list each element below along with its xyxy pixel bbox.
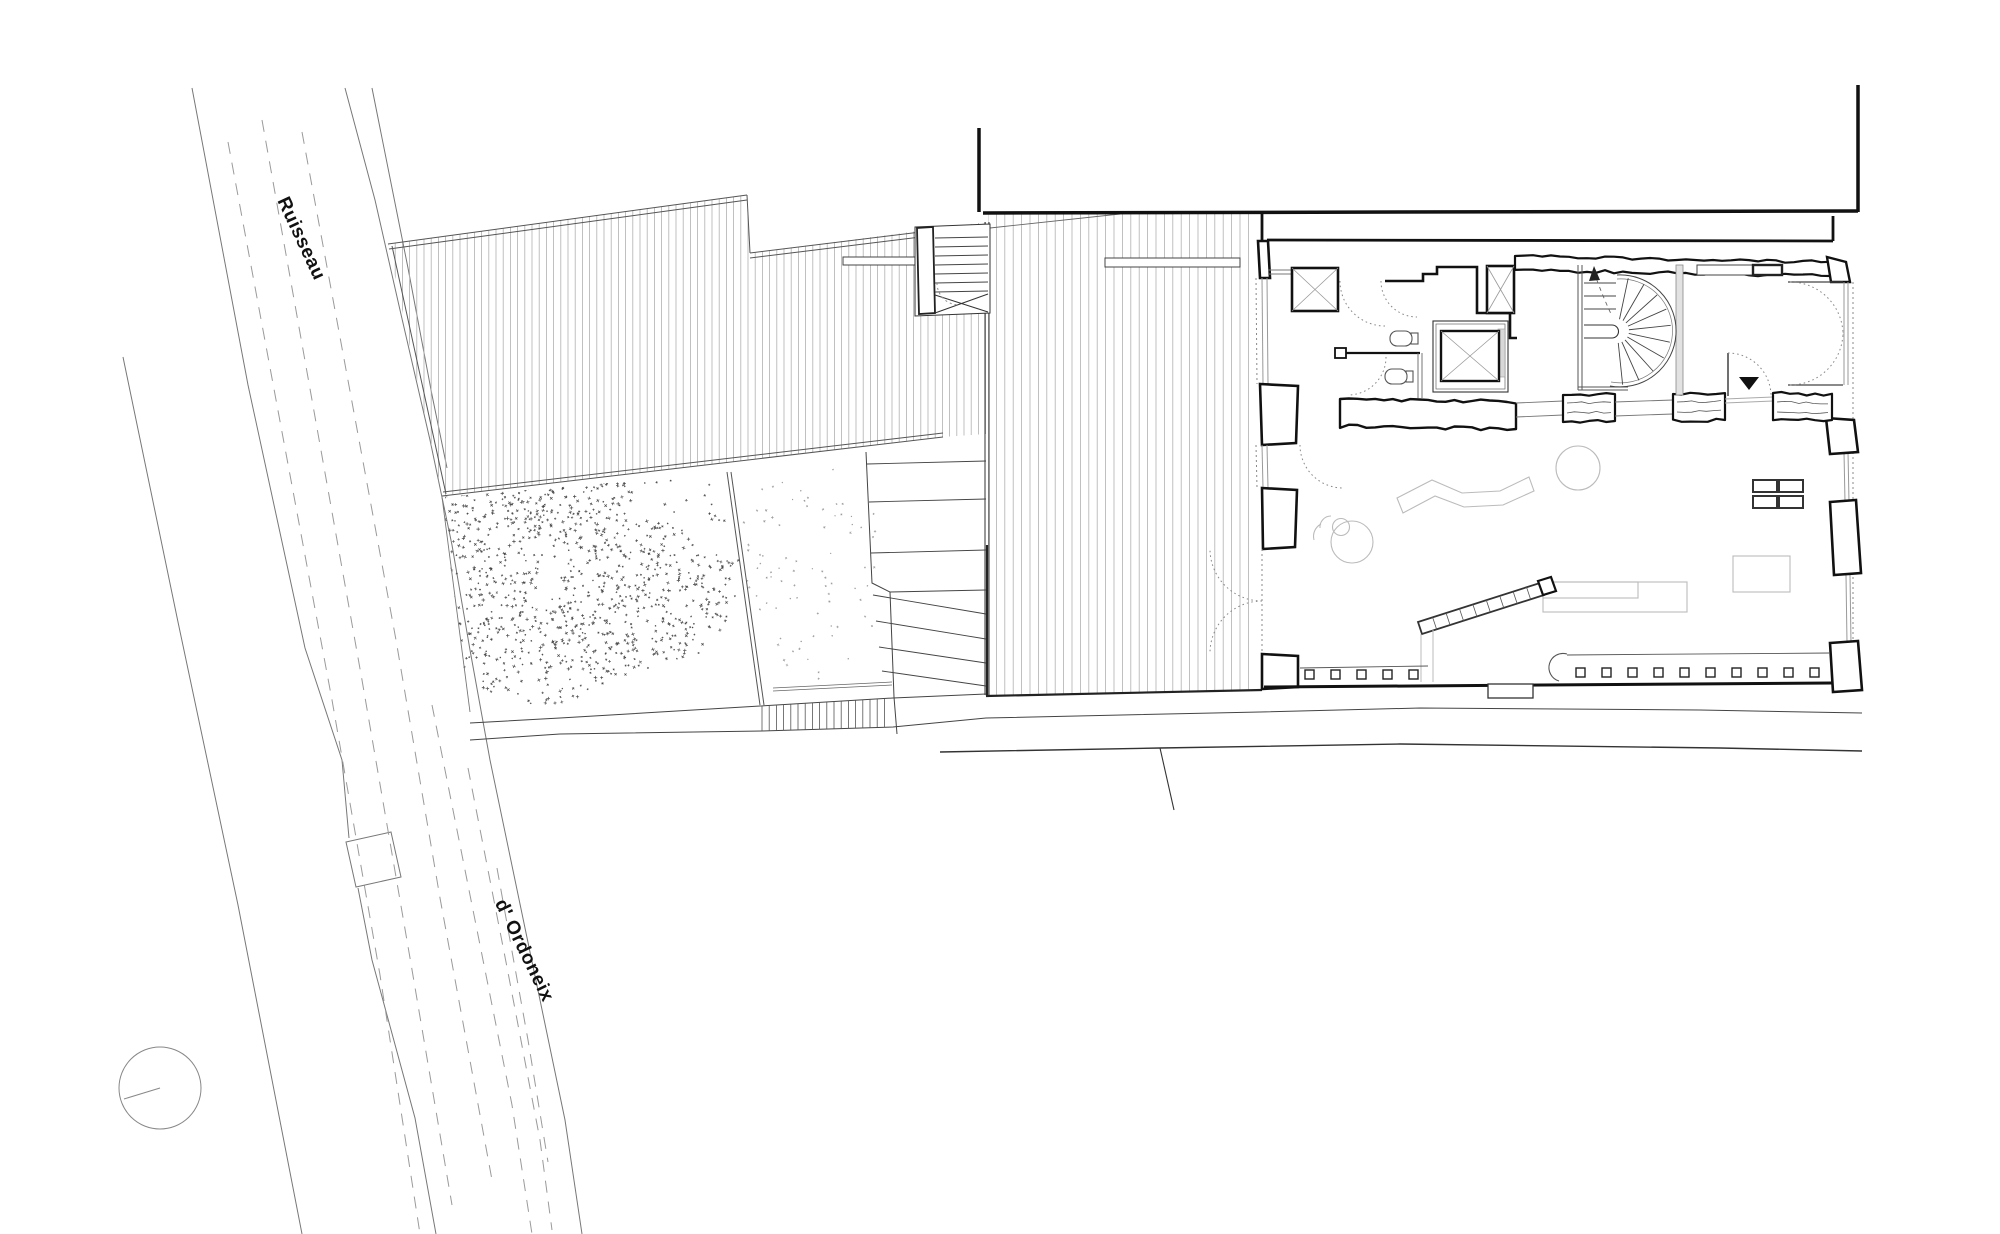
door-swing <box>1728 353 1771 396</box>
entry-door-swing <box>1790 332 1843 385</box>
rug <box>1733 556 1790 592</box>
window-bench <box>1300 653 1830 681</box>
radiator <box>1697 265 1753 275</box>
table-module <box>1779 496 1803 508</box>
table-module <box>1753 480 1777 492</box>
hall-north-wall <box>1340 353 1832 430</box>
roof-ridge-bar <box>843 257 917 265</box>
entry-door-swing <box>1790 282 1843 335</box>
roof-central <box>988 210 1248 699</box>
roof-skylight-bar <box>1105 258 1240 267</box>
counter <box>1418 577 1556 682</box>
courtyard <box>396 438 1862 810</box>
site-context <box>119 88 582 1234</box>
table-module <box>1779 480 1803 492</box>
stream-label-upper: Ruisseau <box>273 194 330 284</box>
radiator <box>1753 265 1782 275</box>
architectural-site-plan: Ruisseaud' Ordoneix <box>0 0 2000 1234</box>
table-module <box>1753 496 1777 508</box>
floor-plan-canvas: Ruisseaud' Ordoneix <box>0 0 2000 1234</box>
rug <box>1543 582 1687 612</box>
garden-steps <box>866 452 986 734</box>
exterior-walls <box>979 85 1862 692</box>
entrance-arrow <box>1739 377 1759 390</box>
wavy-bench <box>1397 477 1534 513</box>
stream-label-lower: d' Ordoneix <box>490 896 558 1005</box>
roofs <box>388 191 1248 699</box>
north-indicator <box>119 1047 201 1129</box>
round-table <box>1331 521 1373 563</box>
roof-west <box>388 191 986 500</box>
roof-stair <box>915 224 990 316</box>
hall-furniture <box>1314 446 1803 612</box>
door-swing <box>1340 281 1385 326</box>
round-table <box>1556 446 1600 490</box>
courtyard-stipple <box>396 438 876 705</box>
wc-toilet <box>1385 369 1407 384</box>
door-swing <box>1381 281 1417 317</box>
building-plan <box>979 85 1862 698</box>
spiral-stair <box>1578 265 1683 395</box>
wc-toilet <box>1390 331 1412 346</box>
path-band <box>470 690 1862 810</box>
west-door-swing <box>1210 601 1262 653</box>
door-swing <box>1348 357 1386 395</box>
path-steps <box>762 699 884 731</box>
elevator <box>1433 321 1508 392</box>
wall-niche <box>1488 684 1533 698</box>
west-door-swing <box>1210 549 1262 601</box>
door-swing <box>1300 445 1343 488</box>
front-room <box>1697 265 1782 275</box>
stool <box>1333 519 1350 536</box>
